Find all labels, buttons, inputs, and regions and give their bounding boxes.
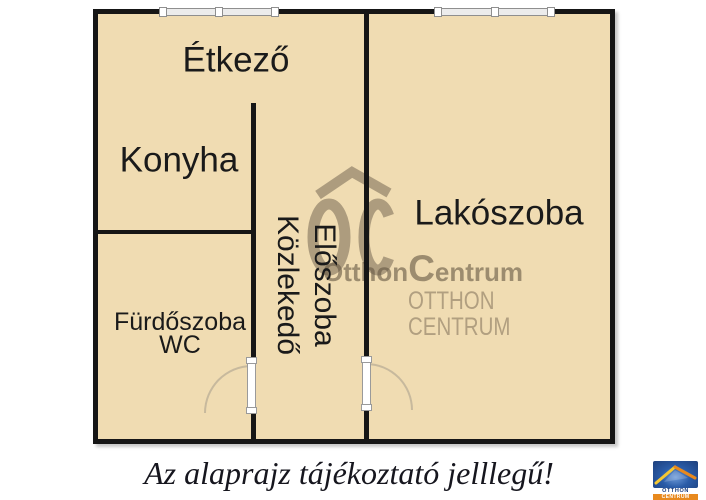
logo-roof-icon <box>653 461 698 488</box>
logo-text-centrum: CENTRUM <box>653 494 698 500</box>
room-label-konyha: Konyha <box>120 143 239 180</box>
wall-konyha-furdoszoba <box>98 230 256 234</box>
wall-lakoszoba-lower <box>364 411 369 439</box>
room-label-lakoszoba: Lakószoba <box>414 196 583 233</box>
disclaimer-caption: Az alaprajz tájékoztató jelllegű! <box>144 455 554 492</box>
door-arc-furdoszoba <box>204 365 252 413</box>
window-tick-icon <box>271 7 279 17</box>
window-etkezo <box>160 8 278 16</box>
window-tick-icon <box>491 7 499 17</box>
room-label-eloszoba-kozlekedo: Előszoba Közlekedő <box>269 215 343 355</box>
wall-corridor-lower <box>251 413 256 439</box>
watermark-wordmark-c: C <box>408 250 435 287</box>
watermark-wordmark-entrum: entrum <box>435 259 523 285</box>
window-tick-icon <box>547 7 555 17</box>
room-label-furdoszoba-wc: Fürdőszoba WC <box>114 311 246 357</box>
watermark-line-otthon: OTTHON <box>408 288 511 314</box>
otthon-centrum-logo: OTTHON CENTRUM <box>653 461 698 500</box>
window-tick-icon <box>434 7 442 17</box>
door-arc-lakoszoba <box>366 363 413 410</box>
window-tick-icon <box>215 7 223 17</box>
watermark-company-lines: OTTHON CENTRUM <box>408 288 511 340</box>
door-lakoszoba <box>362 357 371 410</box>
watermark-line-centrum: CENTRUM <box>408 314 511 340</box>
room-label-kozlekedo: Közlekedő <box>269 215 306 355</box>
watermark-wordmark: OtthonCentrum <box>323 250 523 287</box>
roof-chevron-icon <box>318 172 389 195</box>
room-label-eloszoba: Előszoba <box>306 215 343 355</box>
room-label-etkezo: Étkező <box>183 43 290 80</box>
door-furdoszoba <box>247 358 256 413</box>
window-tick-icon <box>159 7 167 17</box>
window-lakoszoba <box>435 8 554 16</box>
room-label-wc: WC <box>114 334 246 357</box>
wall-lakoszoba-upper <box>364 14 369 358</box>
floor-plan: OtthonCentrum OTTHON CENTRUM Étkező Kony… <box>93 9 615 444</box>
